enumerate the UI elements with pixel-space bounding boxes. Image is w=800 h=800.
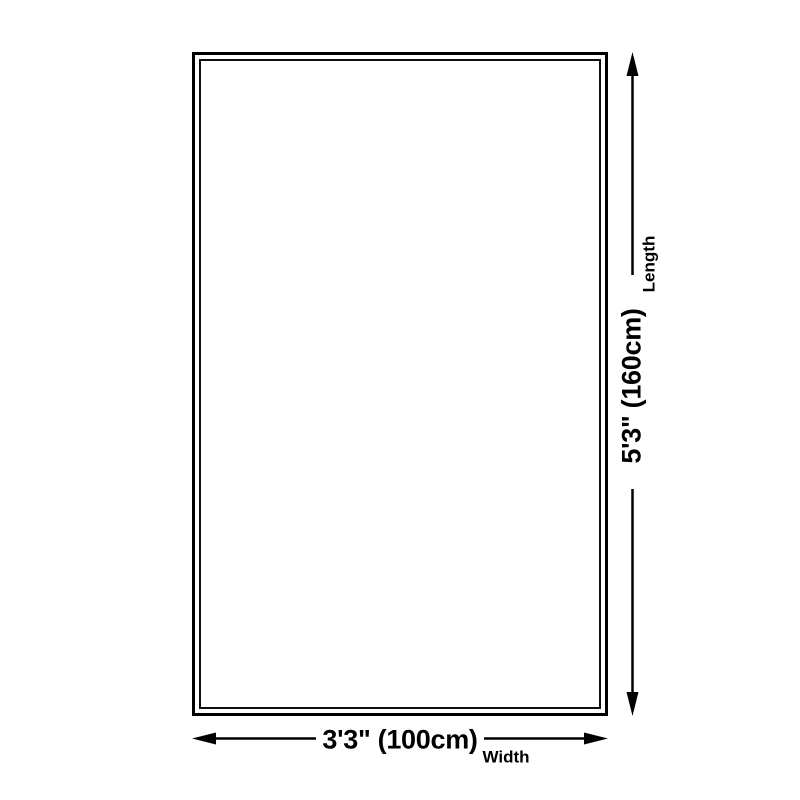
length-dimension-label: Length [641, 236, 658, 293]
length-dimension-value: 5'3" (160cm) [619, 308, 646, 463]
width-dimension-value: 3'3" (100cm) [322, 727, 477, 754]
rug-outline-outer [192, 52, 608, 716]
arrowhead-left-icon [192, 733, 216, 745]
width-dimension-label: Width [482, 749, 529, 766]
arrowhead-right-icon [584, 733, 608, 745]
arrowhead-up-icon [627, 52, 639, 76]
arrowhead-down-icon [627, 692, 639, 716]
dimension-diagram: 5'3" (160cm) Length 3'3" (100cm) Width [0, 0, 800, 800]
rug-outline-inner [199, 59, 601, 709]
